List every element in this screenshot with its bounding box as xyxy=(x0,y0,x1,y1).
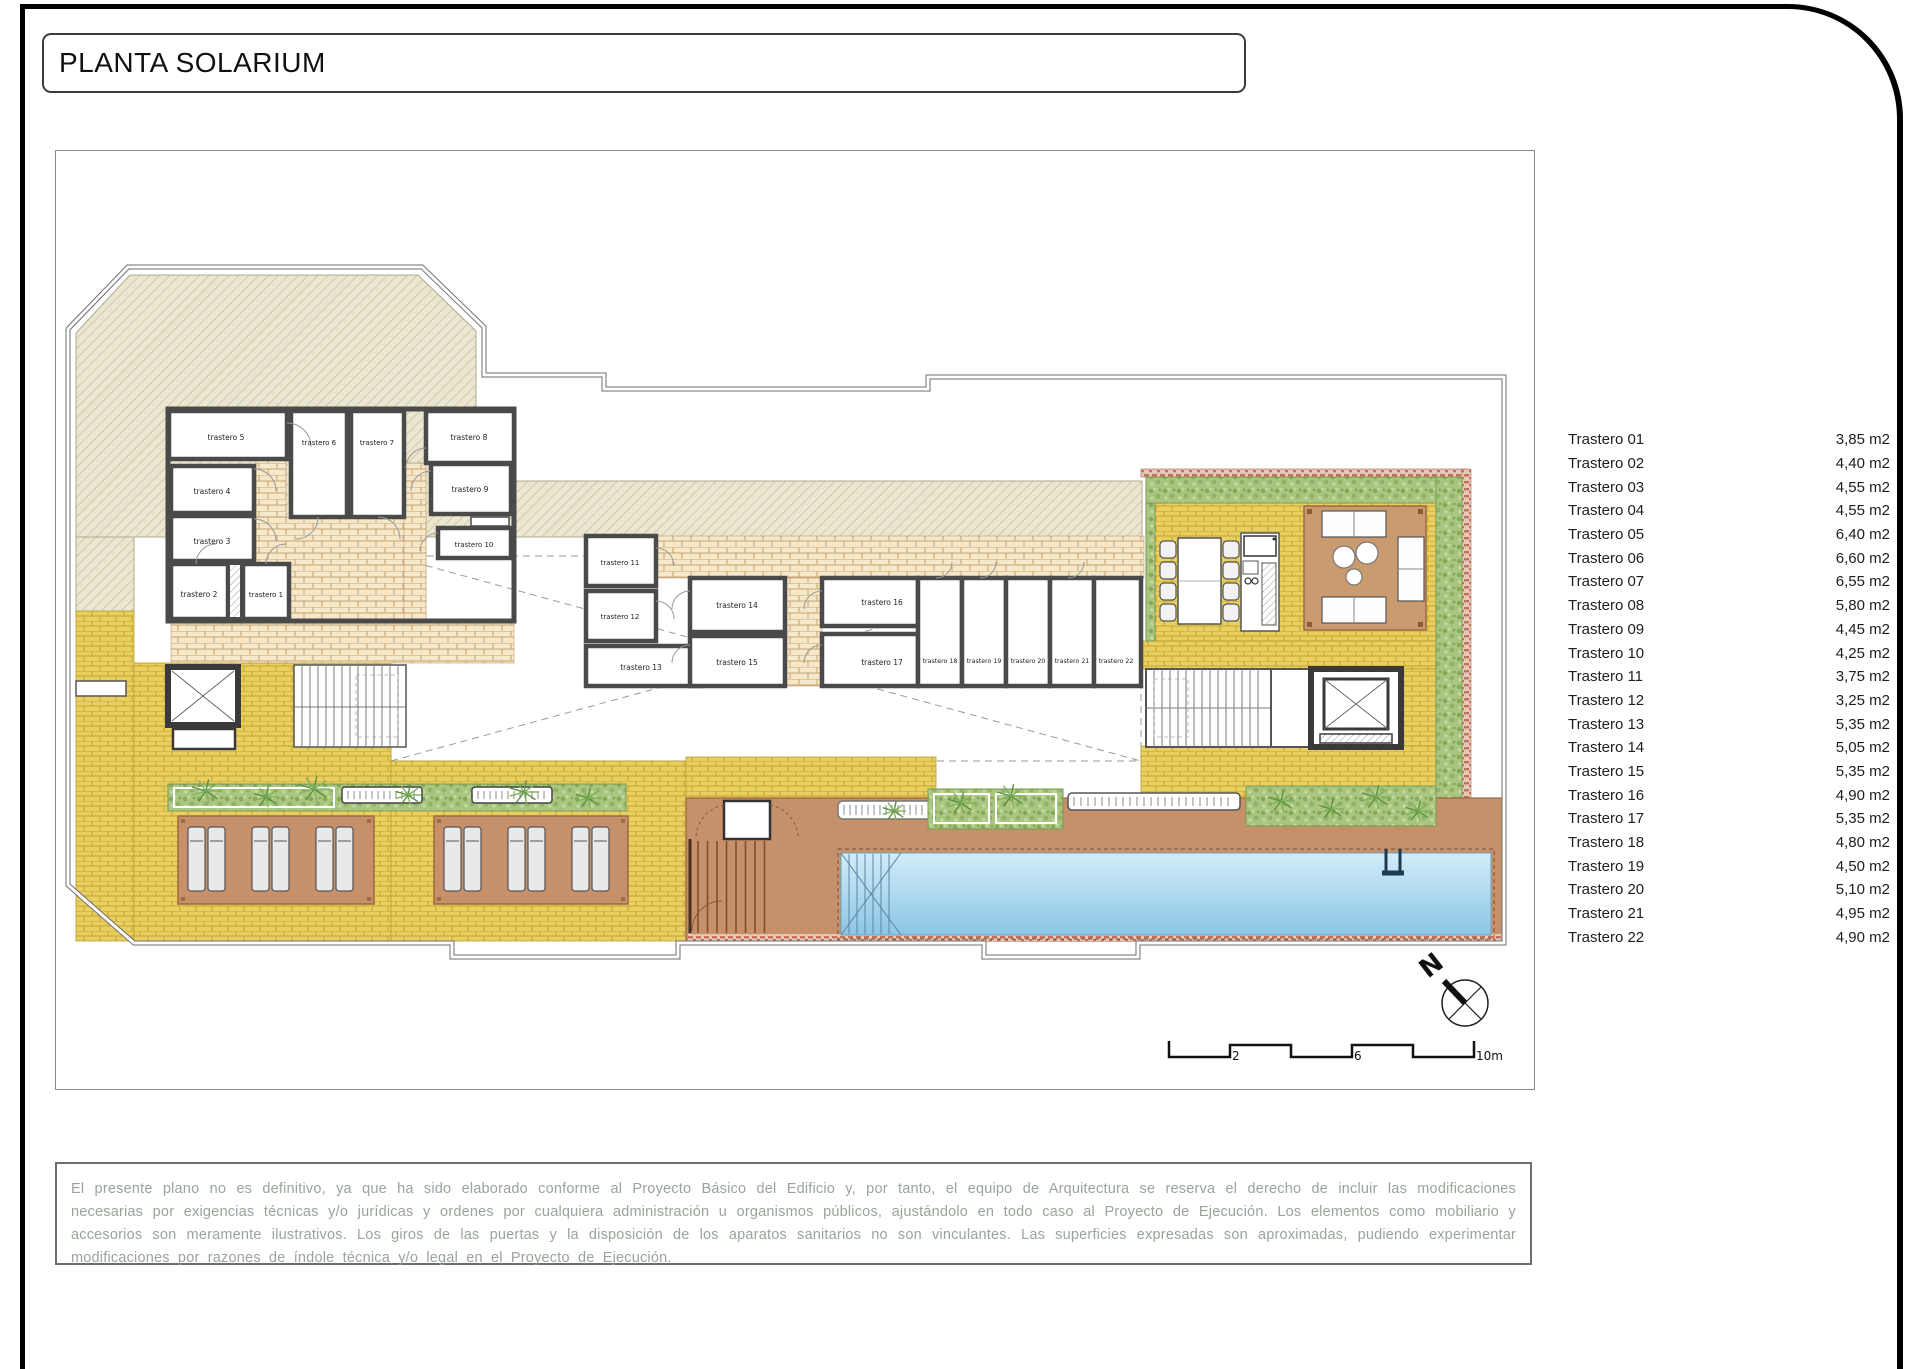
room-label-trastero-15: trastero 15 xyxy=(716,658,758,667)
title-box: PLANTA SOLARIUM xyxy=(42,33,1246,93)
legend-row: Trastero 164,90 m2 xyxy=(1568,783,1890,807)
legend-row: Trastero 224,90 m2 xyxy=(1568,925,1890,949)
disclaimer-text: El presente plano no es definitivo, ya q… xyxy=(71,1178,1516,1270)
legend-room-name: Trastero 15 xyxy=(1568,763,1644,780)
legend-room-name: Trastero 10 xyxy=(1568,645,1644,662)
legend-row: Trastero 056,40 m2 xyxy=(1568,523,1890,547)
room-label-trastero-13: trastero 13 xyxy=(620,663,662,672)
legend-room-area: 4,50 m2 xyxy=(1836,858,1890,875)
room-label-trastero-21: trastero 21 xyxy=(1055,658,1090,665)
legend-room-name: Trastero 19 xyxy=(1568,858,1644,875)
room-label-trastero-4: trastero 4 xyxy=(194,487,231,496)
legend-room-name: Trastero 02 xyxy=(1568,455,1644,472)
legend-room-area: 5,10 m2 xyxy=(1836,881,1890,898)
scale-bar: 2 6 10m xyxy=(1169,1041,1503,1063)
scale-label-10m: 10m xyxy=(1476,1049,1503,1063)
north-label: N xyxy=(1414,947,1450,984)
legend-row: Trastero 076,55 m2 xyxy=(1568,570,1890,594)
room-label-trastero-10: trastero 10 xyxy=(455,541,494,549)
legend-room-name: Trastero 03 xyxy=(1568,479,1644,496)
legend-room-area: 6,55 m2 xyxy=(1836,573,1890,590)
legend-room-area: 4,45 m2 xyxy=(1836,621,1890,638)
legend-row: Trastero 175,35 m2 xyxy=(1568,807,1890,831)
legend-room-area: 5,05 m2 xyxy=(1836,739,1890,756)
legend-room-area: 6,60 m2 xyxy=(1836,550,1890,567)
legend-room-area: 4,55 m2 xyxy=(1836,502,1890,519)
legend-row: Trastero 104,25 m2 xyxy=(1568,641,1890,665)
room-label-trastero-12: trastero 12 xyxy=(601,613,640,621)
elevator-right xyxy=(1311,669,1401,747)
room-label-trastero-16: trastero 16 xyxy=(861,598,903,607)
scale-label-2: 2 xyxy=(1232,1049,1240,1063)
room-label-trastero-6: trastero 6 xyxy=(302,439,337,447)
legend-row: Trastero 135,35 m2 xyxy=(1568,712,1890,736)
room-label-trastero-19: trastero 19 xyxy=(967,658,1002,665)
room-label-trastero-2: trastero 2 xyxy=(181,590,218,599)
elevator-left xyxy=(168,667,238,749)
swimming-pool xyxy=(838,849,1494,939)
kitchen-unit xyxy=(1241,533,1279,631)
legend-row: Trastero 123,25 m2 xyxy=(1568,689,1890,713)
room-label-trastero-20: trastero 20 xyxy=(1011,658,1046,665)
page-title: PLANTA SOLARIUM xyxy=(44,47,326,79)
legend-row: Trastero 113,75 m2 xyxy=(1568,665,1890,689)
legend-room-name: Trastero 11 xyxy=(1568,668,1643,685)
room-label-trastero-3: trastero 3 xyxy=(194,537,231,546)
legend-room-area: 4,25 m2 xyxy=(1836,645,1890,662)
room-label-trastero-8: trastero 8 xyxy=(451,433,488,442)
legend-room-name: Trastero 17 xyxy=(1568,810,1644,827)
legend-room-area: 5,35 m2 xyxy=(1836,810,1890,827)
legend-room-name: Trastero 09 xyxy=(1568,621,1644,638)
legend-room-name: Trastero 08 xyxy=(1568,597,1644,614)
legend-room-name: Trastero 22 xyxy=(1568,929,1644,946)
legend-room-name: Trastero 04 xyxy=(1568,502,1644,519)
legend-row: Trastero 013,85 m2 xyxy=(1568,428,1890,452)
legend-room-area: 5,80 m2 xyxy=(1836,597,1890,614)
legend-room-name: Trastero 05 xyxy=(1568,526,1644,543)
lounge-area xyxy=(1304,506,1426,630)
room-label-trastero-1: trastero 1 xyxy=(249,591,283,599)
legend-room-area: 4,90 m2 xyxy=(1836,787,1890,804)
legend-room-area: 5,35 m2 xyxy=(1836,763,1890,780)
legend-room-area: 4,80 m2 xyxy=(1836,834,1890,851)
legend-room-name: Trastero 21 xyxy=(1568,905,1644,922)
legend-row: Trastero 094,45 m2 xyxy=(1568,618,1890,642)
legend-row: Trastero 145,05 m2 xyxy=(1568,736,1890,760)
legend-row: Trastero 066,60 m2 xyxy=(1568,546,1890,570)
room-label-trastero-14: trastero 14 xyxy=(716,601,758,610)
scale-label-6: 6 xyxy=(1354,1049,1362,1063)
stairs-left xyxy=(294,665,406,747)
legend-room-area: 4,55 m2 xyxy=(1836,479,1890,496)
legend-row: Trastero 024,40 m2 xyxy=(1568,452,1890,476)
trastero-legend: Trastero 013,85 m2Trastero 024,40 m2Tras… xyxy=(1568,428,1890,949)
legend-room-name: Trastero 06 xyxy=(1568,550,1644,567)
legend-row: Trastero 034,55 m2 xyxy=(1568,475,1890,499)
room-label-trastero-11: trastero 11 xyxy=(601,559,640,567)
disclaimer-box: El presente plano no es definitivo, ya q… xyxy=(55,1162,1532,1265)
legend-room-area: 4,40 m2 xyxy=(1836,455,1890,472)
stairs-right xyxy=(1146,669,1271,747)
legend-room-area: 4,90 m2 xyxy=(1836,929,1890,946)
outdoor-bench xyxy=(76,681,126,696)
floor-plan-drawing: trastero 1trastero 2trastero 3trastero 4… xyxy=(56,151,1534,1089)
legend-row: Trastero 085,80 m2 xyxy=(1568,594,1890,618)
legend-room-area: 3,25 m2 xyxy=(1836,692,1890,709)
room-label-trastero-22: trastero 22 xyxy=(1099,658,1134,665)
legend-room-area: 3,75 m2 xyxy=(1836,668,1890,685)
legend-room-name: Trastero 20 xyxy=(1568,881,1644,898)
legend-room-area: 5,35 m2 xyxy=(1836,716,1890,733)
legend-row: Trastero 184,80 m2 xyxy=(1568,831,1890,855)
legend-room-area: 4,95 m2 xyxy=(1836,905,1890,922)
vestibule xyxy=(1271,669,1311,747)
legend-room-name: Trastero 12 xyxy=(1568,692,1644,709)
legend-row: Trastero 044,55 m2 xyxy=(1568,499,1890,523)
legend-row: Trastero 155,35 m2 xyxy=(1568,760,1890,784)
room-label-trastero-9: trastero 9 xyxy=(452,485,489,494)
legend-room-name: Trastero 16 xyxy=(1568,787,1644,804)
legend-room-area: 3,85 m2 xyxy=(1836,431,1890,448)
floor-plan-container: trastero 1trastero 2trastero 3trastero 4… xyxy=(55,150,1535,1090)
legend-row: Trastero 194,50 m2 xyxy=(1568,854,1890,878)
legend-row: Trastero 214,95 m2 xyxy=(1568,902,1890,926)
north-compass: N xyxy=(1414,947,1488,1026)
room-label-trastero-18: trastero 18 xyxy=(923,658,958,665)
legend-room-name: Trastero 01 xyxy=(1568,431,1644,448)
legend-room-name: Trastero 18 xyxy=(1568,834,1644,851)
room-label-trastero-17: trastero 17 xyxy=(861,658,903,667)
room-label-trastero-5: trastero 5 xyxy=(208,433,245,442)
legend-room-name: Trastero 07 xyxy=(1568,573,1644,590)
legend-row: Trastero 205,10 m2 xyxy=(1568,878,1890,902)
legend-room-name: Trastero 13 xyxy=(1568,716,1644,733)
room-label-trastero-7: trastero 7 xyxy=(360,439,394,447)
legend-room-name: Trastero 14 xyxy=(1568,739,1644,756)
legend-room-area: 6,40 m2 xyxy=(1836,526,1890,543)
